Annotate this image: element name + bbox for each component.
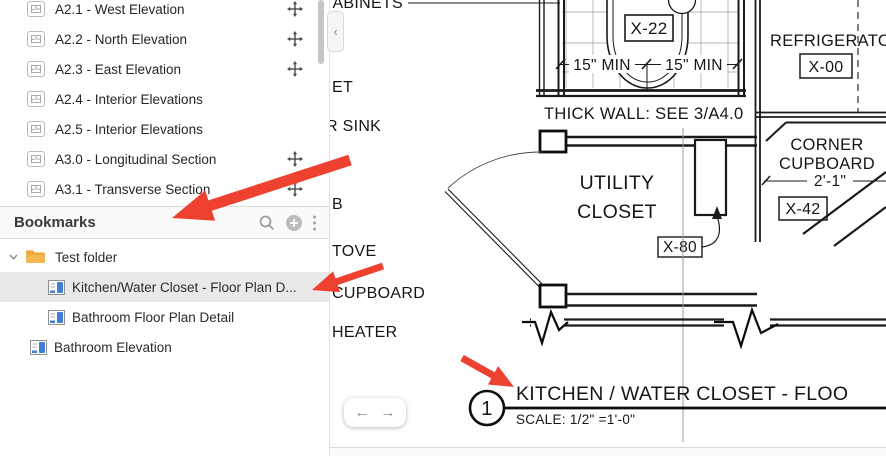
detail-scale: SCALE: 1/2" =1'-0" [516,412,635,427]
sheet-label: A2.2 - North Elevation [55,32,187,47]
label-fragment: B [332,196,343,213]
label-fragment: TOVE [332,243,376,260]
room-label: CLOSET [577,201,657,223]
sheet-list-item[interactable]: A3.0 - Longitudinal Section [0,144,329,174]
status-bar-edge [330,447,886,456]
sheet-thumbnail-icon [27,151,45,167]
move-handle-icon[interactable] [287,31,303,47]
detail-number: 1 [481,398,492,420]
sheet-thumbnail-icon [27,31,45,47]
svg-text:CORNER: CORNER [790,136,863,154]
equipment-tag: X-80 [663,239,697,256]
label-fragment: R SINK [330,118,381,135]
panel-collapse-button[interactable]: ‹ [327,11,344,52]
sheet-list-item[interactable]: A2.5 - Interior Elevations [0,114,329,144]
move-handle-icon[interactable] [287,61,303,77]
bookmarks-title: Bookmarks [14,214,258,231]
sheet-label: A2.4 - Interior Elevations [55,92,203,107]
bookmark-label: Bathroom Elevation [54,340,172,355]
bookmark-item[interactable]: Kitchen/Water Closet - Floor Plan D... [0,272,329,302]
sheet-list-item[interactable]: A2.2 - North Elevation [0,24,329,54]
sheet-list-item[interactable]: A2.4 - Interior Elevations [0,84,329,114]
sidebar-panel: A2.1 - West Elevation A2.2 - North Eleva… [0,0,330,456]
search-icon[interactable] [258,214,276,232]
refrigerator-tag: X-00 [809,59,844,76]
bookmark-icon [48,310,65,325]
sheet-thumbnail-icon [27,91,45,107]
svg-text:X-22: X-22 [630,19,667,38]
svg-text:2'-1": 2'-1" [814,173,846,190]
sheet-label: A3.0 - Longitudinal Section [55,152,216,167]
bookmarks-panel-header: Bookmarks [0,206,329,239]
dim-left-label: 15" MIN [573,57,631,74]
detail-title: KITCHEN / WATER CLOSET - FLOO [516,383,848,405]
sheet-list-item[interactable]: A3.1 - Transverse Section [0,174,329,204]
sheet-label: A3.1 - Transverse Section [55,182,210,197]
sheet-thumbnail-icon [27,1,45,17]
room-label: UTILITY [580,172,655,194]
more-options-icon[interactable] [312,214,317,232]
lower-wall [522,310,886,348]
sheet-thumbnail-icon [27,181,45,197]
label-fragment: CUPBOARD [332,285,425,302]
utility-closet: UTILITY CLOSET X-80 [445,131,757,307]
equipment-rect [695,140,726,215]
svg-text:X-42: X-42 [786,201,821,218]
sheet-list-item[interactable]: A2.3 - East Elevation [0,54,329,84]
move-handle-icon[interactable] [287,1,303,17]
sheet-label: A2.3 - East Elevation [55,62,181,77]
drawing-canvas[interactable]: 15" MIN 15" MIN X-22 THICK WALL: SEE 3/A… [330,0,886,446]
refrigerator-label: REFRIGERATOR [770,32,886,50]
corner-cupboard-area: CORNER CUPBOARD 2'-1" X-42 [762,123,886,247]
chevron-left-icon: ‹ [333,24,337,39]
sheet-list: A2.1 - West Elevation A2.2 - North Eleva… [0,0,329,204]
bookmark-label: Kitchen/Water Closet - Floor Plan D... [72,280,297,295]
folder-label: Test folder [55,250,117,265]
fixture-tag-x22: X-22 [625,15,673,41]
label-fragment: HEATER [332,324,398,341]
thick-wall-note: THICK WALL: SEE 3/A4.0 [544,105,743,123]
sheet-thumbnail-icon [27,61,45,77]
sheet-thumbnail-icon [27,121,45,137]
add-bookmark-icon[interactable] [285,214,303,232]
sheet-label: A2.1 - West Elevation [55,2,185,17]
bookmark-item[interactable]: Bathroom Elevation [0,332,329,362]
bookmark-label: Bathroom Floor Plan Detail [72,310,234,325]
sheet-list-item[interactable]: A2.1 - West Elevation [0,0,329,24]
bookmark-icon [30,340,47,355]
label-fragment: ABINETS [332,0,403,12]
sheet-label: A2.5 - Interior Elevations [55,122,203,137]
detail-title-block: 1 KITCHEN / WATER CLOSET - FLOO SCALE: 1… [470,383,886,427]
move-handle-icon[interactable] [287,181,303,197]
bookmark-icon [48,280,65,295]
label-fragment: ET [332,79,353,96]
bookmarks-tree: Test folder Kitchen/Water Closet - Floor… [0,242,329,362]
move-handle-icon[interactable] [287,151,303,167]
back-button[interactable]: ← [355,405,370,420]
chevron-down-icon[interactable] [8,252,19,262]
left-edge-labels: ABINETS ET R SINK B TOVE CUPBOARD HEATER [330,0,560,341]
forward-button[interactable]: → [381,405,396,420]
svg-text:CUPBOARD: CUPBOARD [779,155,875,173]
page-navigation: ← → [344,398,406,427]
toilet-fixture [607,0,696,88]
sheet-list-scrollbar[interactable] [318,0,324,64]
bookmark-item[interactable]: Bathroom Floor Plan Detail [0,302,329,332]
bookmark-folder-row[interactable]: Test folder [0,242,329,272]
folder-icon [25,249,45,265]
floor-plan-drawing: 15" MIN 15" MIN X-22 THICK WALL: SEE 3/A… [330,0,886,446]
dim-right-label: 15" MIN [665,57,723,74]
